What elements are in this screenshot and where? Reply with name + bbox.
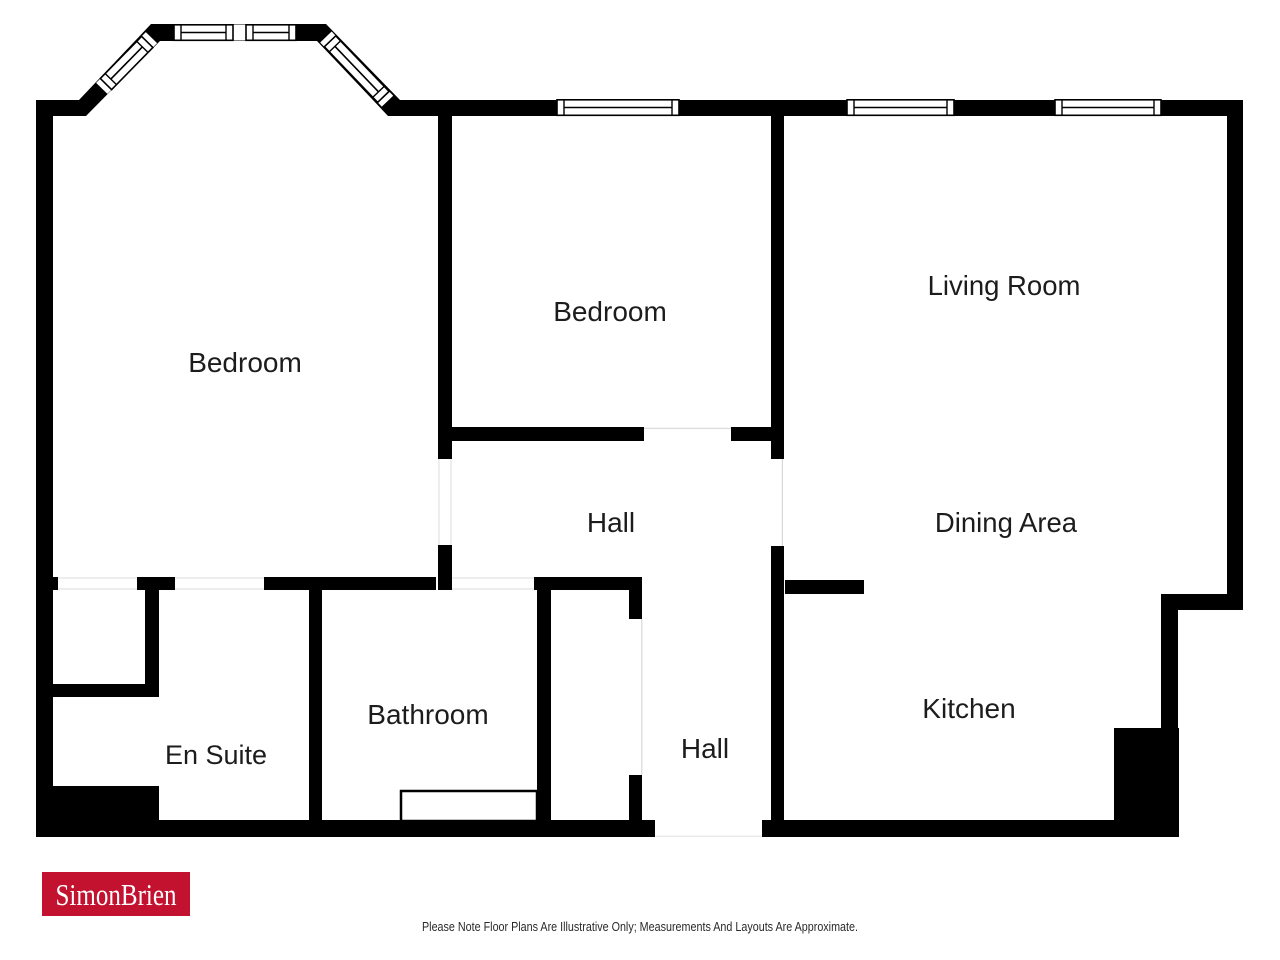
svg-text:Living Room: Living Room [928, 270, 1081, 301]
svg-text:Please Note Floor Plans Are Il: Please Note Floor Plans Are Illustrative… [422, 920, 858, 934]
svg-text:Dining Area: Dining Area [935, 507, 1078, 538]
svg-text:Bedroom: Bedroom [188, 347, 302, 378]
svg-text:En Suite: En Suite [165, 740, 267, 770]
svg-text:Hall: Hall [587, 507, 635, 538]
svg-text:Hall: Hall [681, 733, 729, 764]
svg-text:Bedroom: Bedroom [553, 296, 667, 327]
svg-text:Kitchen: Kitchen [922, 693, 1015, 724]
svg-text:Bathroom: Bathroom [367, 699, 488, 730]
svg-text:SimonBrien: SimonBrien [56, 878, 177, 912]
